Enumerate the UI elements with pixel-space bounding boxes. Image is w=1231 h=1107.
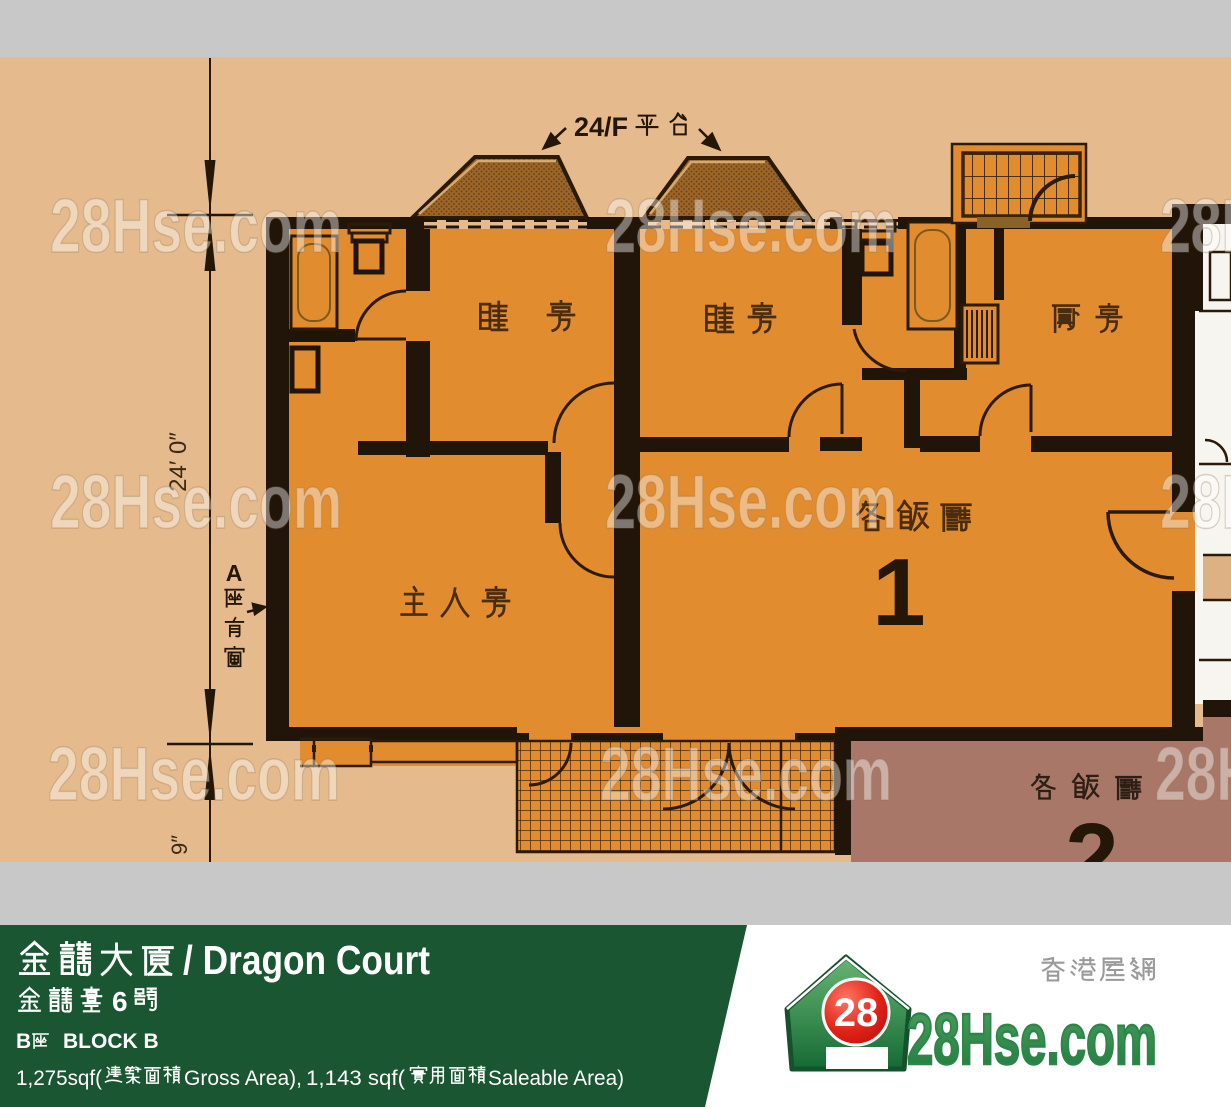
svg-text:Saleable Area): Saleable Area) <box>488 1067 624 1090</box>
svg-text:Gross Area),: Gross Area), <box>184 1067 302 1090</box>
svg-text:B: B <box>16 1030 31 1053</box>
svg-text:28Hse.com: 28Hse.com <box>600 732 892 817</box>
svg-text:28Hse.com: 28Hse.com <box>605 460 897 545</box>
svg-text:6: 6 <box>112 986 128 1017</box>
svg-text:28Hse.com: 28Hse.com <box>1160 184 1231 269</box>
svg-text:28Hse.com: 28Hse.com <box>1160 460 1231 545</box>
svg-text:28Hse.com: 28Hse.com <box>605 184 897 269</box>
svg-text:1,275sqf(: 1,275sqf( <box>16 1067 102 1090</box>
svg-text:28Hse.com: 28Hse.com <box>50 460 342 545</box>
svg-text:A: A <box>226 560 243 586</box>
svg-text:28Hse.com: 28Hse.com <box>50 184 342 269</box>
svg-text:28Hse.com: 28Hse.com <box>1155 732 1231 817</box>
svg-text:28Hse.com: 28Hse.com <box>48 732 340 817</box>
svg-text:28Hse.com: 28Hse.com <box>907 1000 1157 1080</box>
svg-text:9″: 9″ <box>167 835 192 855</box>
svg-text:24/F: 24/F <box>574 112 628 142</box>
svg-text:1: 1 <box>872 539 925 646</box>
svg-text:/ Dragon Court: / Dragon Court <box>183 937 430 983</box>
svg-text:BLOCK B: BLOCK B <box>63 1030 159 1053</box>
svg-text:28: 28 <box>834 991 879 1035</box>
svg-text:1,143 sqf(: 1,143 sqf( <box>306 1067 405 1090</box>
